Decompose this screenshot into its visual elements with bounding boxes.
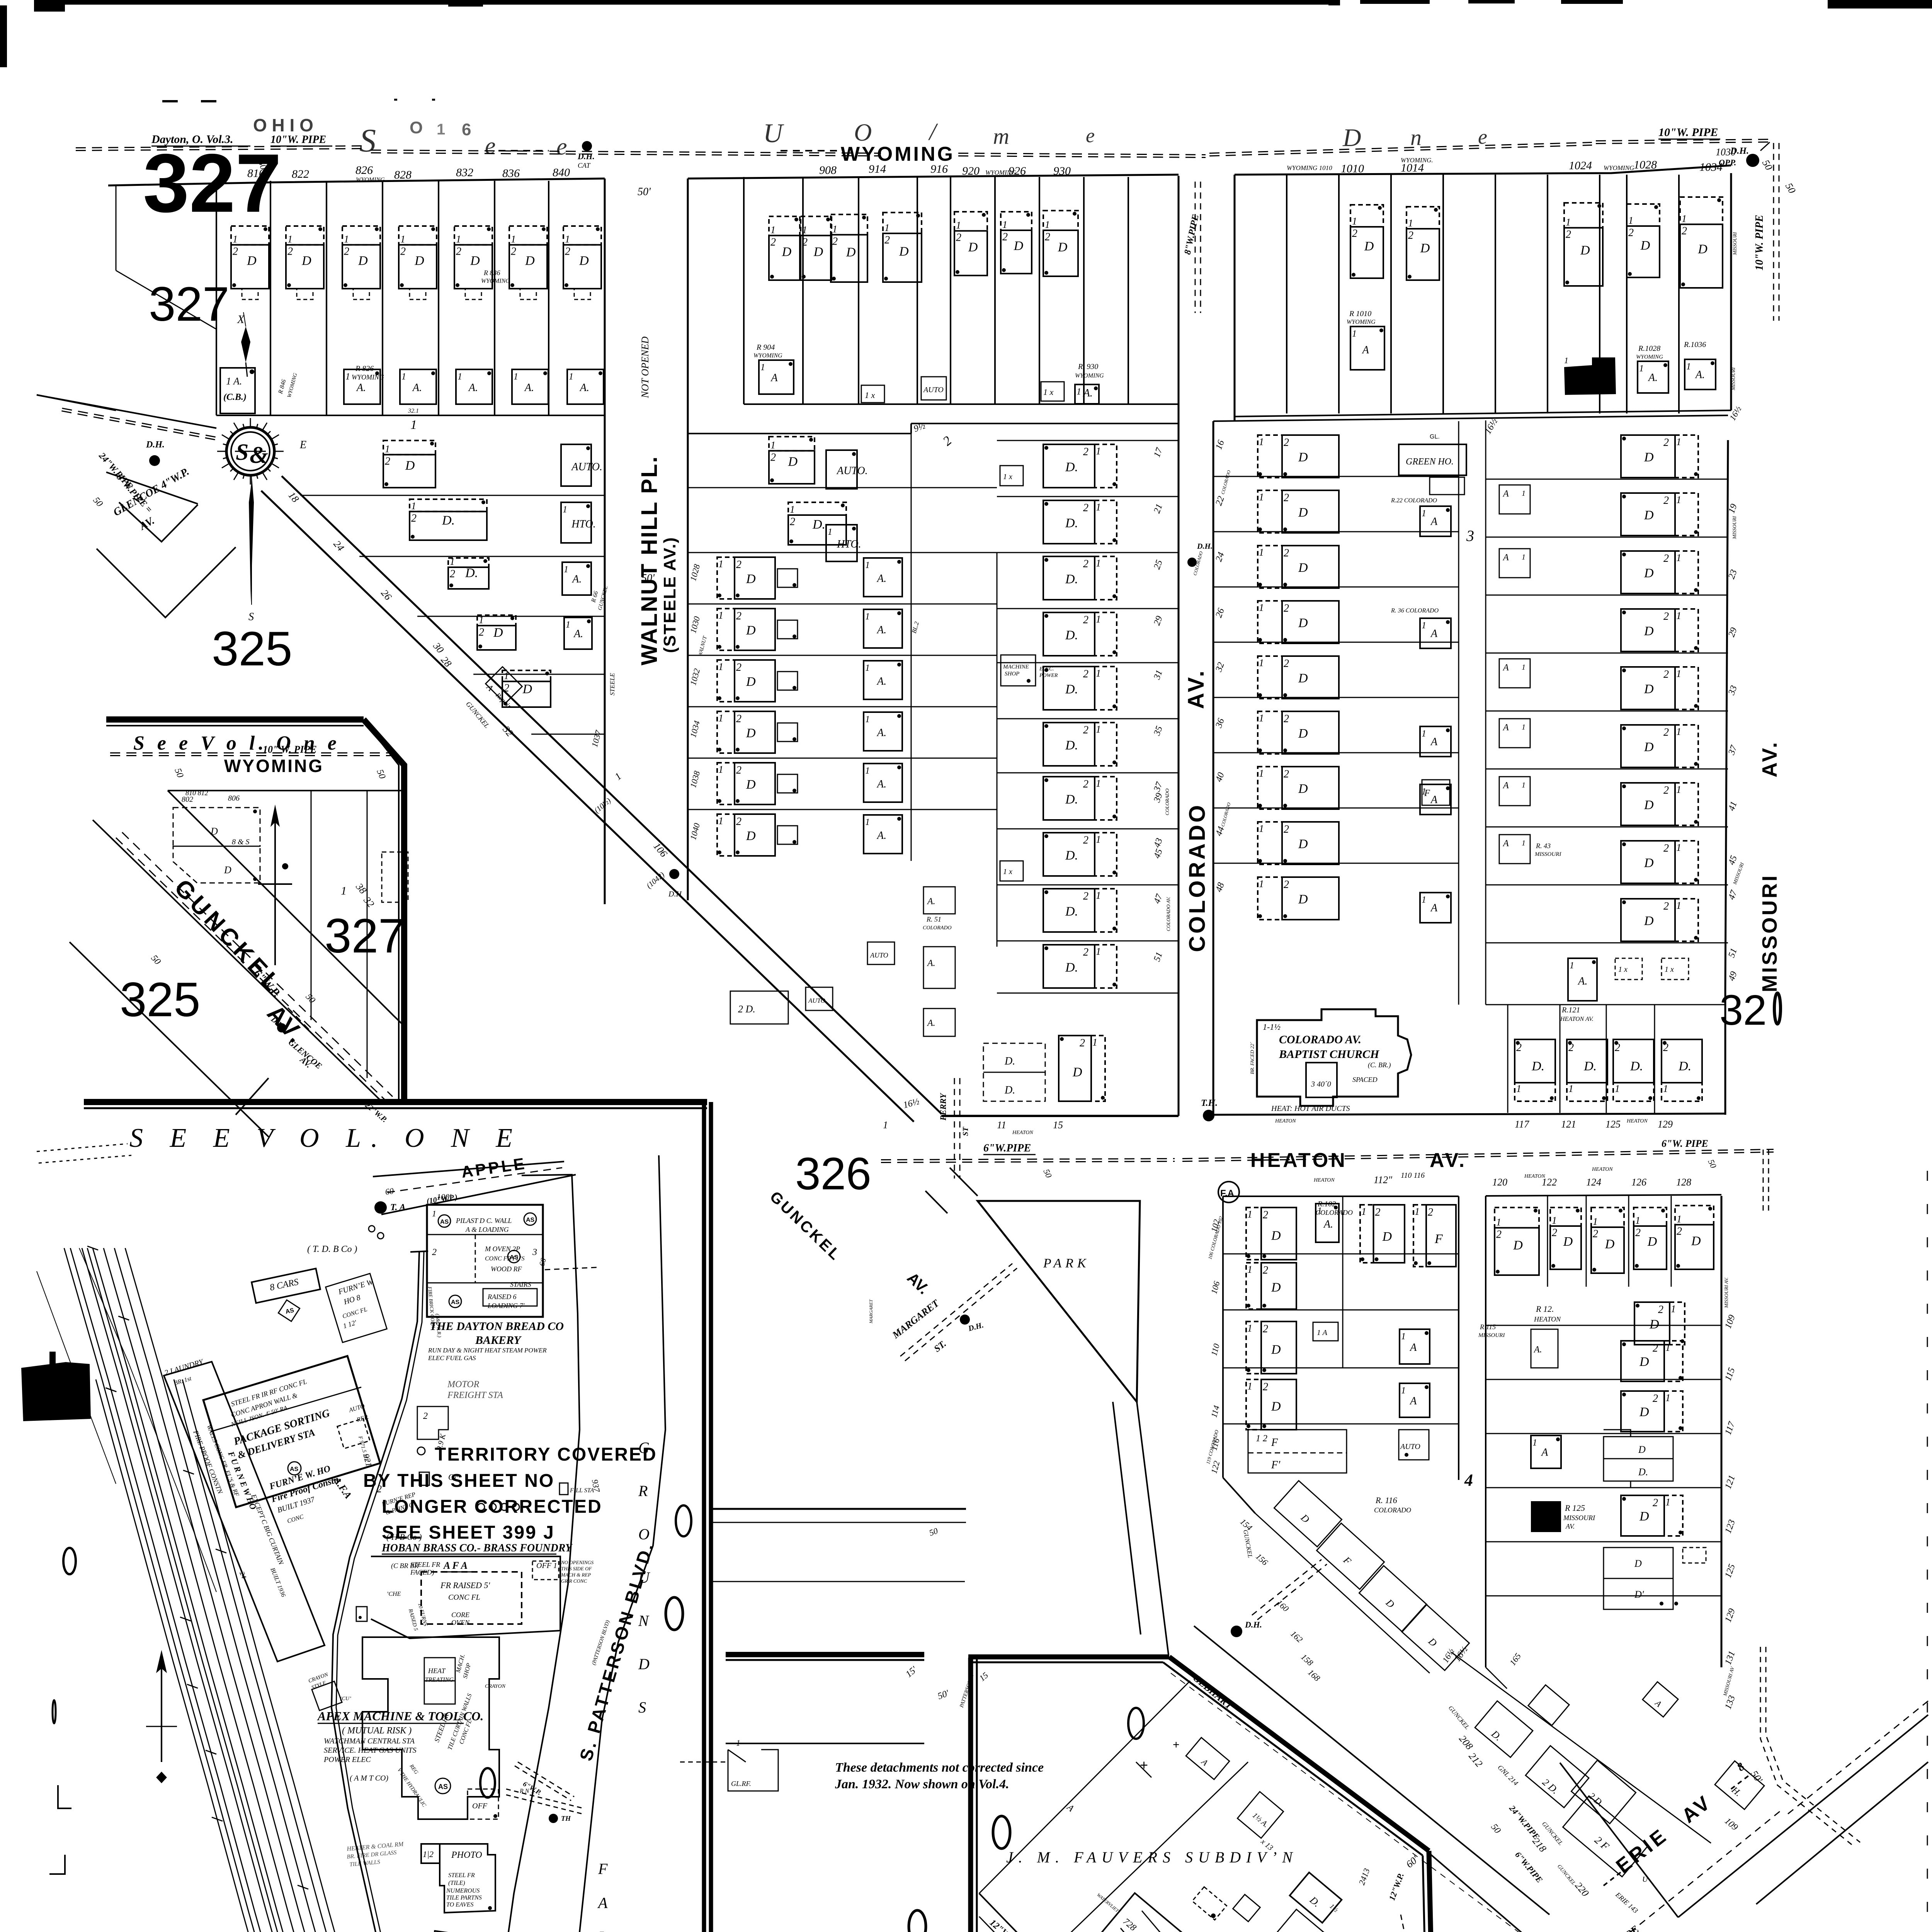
svg-text:D: D xyxy=(1639,1405,1649,1419)
svg-text:E: E xyxy=(299,439,306,451)
svg-text:1 x: 1 x xyxy=(1665,965,1674,974)
svg-text:AUTO: AUTO xyxy=(923,386,944,394)
svg-text:1: 1 xyxy=(1522,723,1526,731)
svg-text:D.: D. xyxy=(1678,1059,1691,1073)
svg-text:1: 1 xyxy=(1096,502,1101,513)
svg-text:D: D xyxy=(358,253,368,268)
svg-text:1: 1 xyxy=(1422,895,1426,905)
svg-text:1: 1 xyxy=(1628,215,1633,226)
svg-text:D: D xyxy=(1298,505,1308,520)
svg-text:1: 1 xyxy=(1352,216,1357,227)
svg-text:D: D xyxy=(1649,1317,1659,1332)
svg-text:810 812: 810 812 xyxy=(185,789,208,797)
svg-text:A.: A. xyxy=(927,896,935,906)
svg-text:914: 914 xyxy=(869,163,886,175)
svg-text:D: D xyxy=(224,864,231,876)
svg-text:U: U xyxy=(638,1569,651,1586)
svg-text:R.121: R.121 xyxy=(1561,1006,1580,1014)
svg-text:U: U xyxy=(763,119,784,148)
svg-text:10"W. PIPE: 10"W. PIPE xyxy=(1753,215,1765,270)
svg-text:D: D xyxy=(899,245,909,259)
svg-text:1: 1 xyxy=(1317,1206,1322,1216)
svg-text:2: 2 xyxy=(1677,1226,1682,1238)
svg-text:1: 1 xyxy=(865,560,870,570)
svg-text:SHOP: SHOP xyxy=(1005,671,1019,677)
svg-text:1 2: 1 2 xyxy=(1256,1434,1267,1444)
svg-text:1: 1 xyxy=(832,224,837,235)
svg-text:MISSOURI: MISSOURI xyxy=(1732,232,1738,255)
svg-text:1: 1 xyxy=(1422,621,1426,631)
svg-text:1: 1 xyxy=(1676,784,1681,795)
svg-text:1: 1 xyxy=(1665,1342,1670,1353)
svg-text:2: 2 xyxy=(450,568,455,580)
svg-text:D: D xyxy=(1634,1558,1642,1569)
svg-text:HEAT: HOT AIR DUCTS: HEAT: HOT AIR DUCTS xyxy=(1271,1104,1350,1113)
svg-text:A.: A. xyxy=(1323,1218,1333,1230)
svg-text:1: 1 xyxy=(718,764,723,775)
svg-text:32.1: 32.1 xyxy=(408,408,419,414)
svg-text:ELEC.: ELEC. xyxy=(1039,666,1054,672)
svg-text:2: 2 xyxy=(1663,611,1669,622)
svg-text:2: 2 xyxy=(884,234,890,246)
svg-text:2: 2 xyxy=(504,682,509,694)
svg-text:NOT OPENED: NOT OPENED xyxy=(639,337,651,398)
svg-text:A.: A. xyxy=(876,675,886,687)
svg-text:110 116: 110 116 xyxy=(1401,1171,1425,1180)
svg-text:129: 129 xyxy=(1658,1119,1673,1130)
svg-text:D: D xyxy=(525,253,535,268)
svg-text:A.: A. xyxy=(876,830,886,842)
svg-text:m: m xyxy=(993,124,1009,149)
svg-text:1: 1 xyxy=(802,224,807,236)
svg-text:D.: D. xyxy=(1004,1055,1015,1067)
svg-text:2: 2 xyxy=(1663,553,1669,565)
svg-text:SPACED: SPACED xyxy=(1352,1076,1378,1083)
svg-text:R.1028: R.1028 xyxy=(1638,344,1660,353)
svg-text:2: 2 xyxy=(1663,495,1669,507)
svg-text:15: 15 xyxy=(1053,1119,1063,1131)
svg-text:BAKERY: BAKERY xyxy=(475,1334,522,1347)
svg-text:FR RAISED 5′: FR RAISED 5′ xyxy=(440,1580,490,1590)
svg-text:112": 112" xyxy=(1374,1174,1392,1185)
svg-text:1: 1 xyxy=(1259,878,1264,889)
svg-text:HEATON AV.: HEATON AV. xyxy=(1560,1016,1594,1022)
svg-text:1: 1 xyxy=(1259,823,1264,834)
svg-text:1: 1 xyxy=(1408,218,1413,229)
svg-text:MISSOURI: MISSOURI xyxy=(1730,367,1736,391)
svg-text:COLORADO AV.: COLORADO AV. xyxy=(1165,896,1171,931)
svg-text:D.: D. xyxy=(1065,904,1078,918)
svg-text:A: A xyxy=(597,1894,608,1912)
svg-text:Oc: Oc xyxy=(448,1472,458,1482)
svg-text:R. 51: R. 51 xyxy=(926,915,941,923)
svg-text:HEATON: HEATON xyxy=(1626,1118,1648,1124)
svg-text:1: 1 xyxy=(865,663,870,673)
svg-text:ELEC FUEL GAS: ELEC FUEL GAS xyxy=(428,1354,476,1362)
svg-text:D: D xyxy=(247,253,257,268)
svg-text:A: A xyxy=(1502,838,1509,849)
svg-text:A.: A. xyxy=(1083,387,1093,399)
svg-text:1: 1 xyxy=(1676,726,1681,737)
svg-text:O: O xyxy=(638,1526,650,1543)
svg-text:1: 1 xyxy=(479,614,484,626)
svg-text:1: 1 xyxy=(1096,558,1101,569)
svg-text:+: + xyxy=(1173,1738,1180,1751)
svg-text:HOBAN BRASS CO.- BRASS FOUND: HOBAN BRASS CO.- BRASS FOUNDRY xyxy=(381,1542,573,1554)
svg-text:D: D xyxy=(1640,238,1650,253)
svg-text:(STEELE AV.): (STEELE AV.) xyxy=(660,537,679,653)
svg-text:822: 822 xyxy=(292,168,309,180)
svg-text:STEEL FR: STEEL FR xyxy=(448,1872,475,1879)
svg-text:3 40´0: 3 40´0 xyxy=(1311,1080,1331,1088)
svg-text:&: & xyxy=(250,442,268,468)
svg-text:A: A xyxy=(770,372,778,384)
svg-text:1: 1 xyxy=(564,565,568,575)
svg-text:1: 1 xyxy=(884,222,889,233)
svg-text:POWER: POWER xyxy=(1039,673,1058,679)
svg-text:128: 128 xyxy=(1676,1177,1691,1188)
svg-text:2: 2 xyxy=(1635,1227,1641,1239)
svg-text:A: A xyxy=(1502,723,1509,733)
svg-text:( A M T CO): ( A M T CO) xyxy=(350,1774,388,1782)
svg-text:1: 1 xyxy=(1522,839,1526,847)
svg-text:AS: AS xyxy=(510,1254,519,1261)
svg-text:A: A xyxy=(1430,628,1438,639)
svg-text:1: 1 xyxy=(1676,610,1681,621)
svg-text:A.: A. xyxy=(876,624,886,636)
svg-text:11: 11 xyxy=(997,1119,1006,1131)
svg-text:D: D xyxy=(1644,508,1654,522)
svg-text:( T. D. B Co ): ( T. D. B Co ) xyxy=(307,1244,357,1254)
svg-text:A: A xyxy=(1541,1447,1548,1459)
svg-text:1: 1 xyxy=(1552,1215,1557,1226)
svg-text:D: D xyxy=(1644,450,1654,464)
svg-text:2: 2 xyxy=(1566,229,1571,241)
svg-text:HEATON: HEATON xyxy=(1524,1173,1545,1179)
svg-text:AV.: AV. xyxy=(1565,1522,1575,1530)
svg-text:A.: A. xyxy=(412,382,422,394)
svg-text:D: D xyxy=(746,829,756,843)
svg-text:2: 2 xyxy=(802,236,808,248)
svg-text:1: 1 xyxy=(770,440,776,451)
svg-text:’CHE: ’CHE xyxy=(386,1591,401,1597)
svg-text:HTO.: HTO. xyxy=(837,538,861,550)
svg-text:1: 1 xyxy=(1532,1438,1537,1448)
svg-text:1: 1 xyxy=(736,1738,740,1748)
svg-text:D: D xyxy=(522,682,532,696)
svg-text:1: 1 xyxy=(1635,1215,1640,1226)
svg-text:J. M. FAUVERS SUBDIV’N: J. M. FAUVERS SUBDIV’N xyxy=(1006,1849,1298,1866)
svg-text:2: 2 xyxy=(1045,231,1050,243)
svg-text:GL.RF.: GL.RF. xyxy=(731,1780,751,1787)
svg-text:THE DAYTON BREAD CO: THE DAYTON BREAD CO xyxy=(430,1320,564,1333)
svg-text:D: D xyxy=(1298,561,1308,575)
svg-text:POWER ELEC: POWER ELEC xyxy=(323,1755,371,1764)
svg-text:327: 327 xyxy=(325,909,405,963)
svg-text:D: D xyxy=(782,245,792,259)
svg-text:1: 1 xyxy=(401,372,406,382)
svg-text:2: 2 xyxy=(832,236,838,248)
svg-text:60: 60 xyxy=(384,1186,394,1197)
svg-text:1 A: 1 A xyxy=(1317,1328,1328,1337)
svg-text:G: G xyxy=(638,1439,650,1456)
svg-text:F: F xyxy=(1271,1437,1278,1449)
svg-text:RAISED 6: RAISED 6 xyxy=(487,1293,516,1301)
svg-text:2: 2 xyxy=(385,456,390,468)
svg-text:2: 2 xyxy=(1284,713,1289,725)
svg-text:1: 1 xyxy=(1570,961,1574,971)
svg-text:1: 1 xyxy=(563,505,567,515)
svg-text:WYOMING: WYOMING xyxy=(1075,372,1104,379)
svg-text:R 115: R 115 xyxy=(1480,1323,1496,1331)
svg-text:1: 1 xyxy=(450,556,455,567)
svg-text:2: 2 xyxy=(287,246,293,258)
svg-text:1: 1 xyxy=(1639,364,1644,374)
svg-text:10" W. PIPE: 10" W. PIPE xyxy=(263,744,317,755)
svg-text:1010: 1010 xyxy=(1341,162,1364,175)
svg-text:2: 2 xyxy=(1653,1342,1658,1354)
svg-text:NUMEROUS: NUMEROUS xyxy=(446,1888,480,1894)
svg-text:FACED): FACED) xyxy=(410,1568,434,1577)
svg-text:COLORADO: COLORADO xyxy=(1374,1506,1411,1514)
svg-text:125: 125 xyxy=(1605,1119,1621,1130)
svg-text:F: F xyxy=(1424,788,1430,798)
svg-text:1: 1 xyxy=(1677,1214,1682,1225)
svg-text:1: 1 xyxy=(1676,494,1681,505)
svg-text:325: 325 xyxy=(212,622,293,676)
svg-text:D.H.: D.H. xyxy=(1730,146,1749,156)
svg-text:AS: AS xyxy=(438,1783,448,1791)
svg-text:D: D xyxy=(746,726,756,740)
svg-text:2: 2 xyxy=(1083,502,1088,514)
svg-text:2: 2 xyxy=(1284,437,1289,449)
svg-text:R.1036: R.1036 xyxy=(1684,340,1706,349)
svg-text:A: A xyxy=(1430,515,1438,527)
svg-text:WYOMING: WYOMING xyxy=(753,352,782,359)
svg-text:D: D xyxy=(1298,726,1308,741)
svg-text:50': 50' xyxy=(638,186,651,198)
svg-text:1: 1 xyxy=(457,372,462,382)
svg-text:HEAT: HEAT xyxy=(428,1667,446,1675)
svg-text:A.: A. xyxy=(1533,1345,1542,1355)
svg-text:1: 1 xyxy=(1568,1083,1573,1094)
svg-text:( H B Co ): ( H B Co ) xyxy=(386,1532,422,1542)
svg-text:2: 2 xyxy=(1408,230,1413,241)
svg-text:D: D xyxy=(1639,1355,1649,1369)
svg-text:RUN DAY & NIGHT HEAT STEAM PO: RUN DAY & NIGHT HEAT STEAM POWER xyxy=(428,1347,547,1354)
svg-text:TH: TH xyxy=(561,1815,571,1822)
svg-text:R: R xyxy=(638,1482,648,1500)
svg-text:D: D xyxy=(1647,1235,1657,1249)
svg-text:FILL STA: FILL STA xyxy=(570,1487,594,1494)
svg-text:MARGARET: MARGARET xyxy=(868,1299,874,1324)
svg-text:1 x: 1 x xyxy=(1618,965,1628,974)
svg-text:D: D xyxy=(746,572,756,586)
svg-text:2: 2 xyxy=(1653,1393,1658,1405)
svg-text:836: 836 xyxy=(502,167,520,180)
svg-text:A: A xyxy=(1409,1395,1417,1407)
svg-text:D.: D. xyxy=(1065,848,1078,862)
svg-text:1: 1 xyxy=(1686,362,1691,372)
svg-text:1: 1 xyxy=(1522,781,1526,789)
svg-text:1: 1 xyxy=(1516,1083,1521,1094)
svg-text:1: 1 xyxy=(1676,668,1681,679)
svg-text:CORE: CORE xyxy=(451,1611,469,1619)
svg-text:2: 2 xyxy=(1083,668,1088,680)
svg-text:A: A xyxy=(1430,794,1438,806)
svg-text:1: 1 xyxy=(1096,834,1101,845)
svg-text:(CU’: (CU’ xyxy=(340,1696,351,1702)
svg-text:2: 2 xyxy=(1428,1206,1433,1218)
svg-text:A.: A. xyxy=(927,958,935,968)
svg-text:D: D xyxy=(1298,671,1308,685)
svg-text:1: 1 xyxy=(1092,1037,1097,1048)
svg-text:F: F xyxy=(1434,1232,1443,1246)
svg-text:1: 1 xyxy=(718,558,723,570)
svg-text:2: 2 xyxy=(790,516,795,528)
svg-text:1: 1 xyxy=(1002,219,1007,230)
svg-text:WYOMING.: WYOMING. xyxy=(1401,156,1433,164)
svg-text:1: 1 xyxy=(760,362,765,372)
svg-text:D.: D. xyxy=(1583,1059,1597,1073)
svg-text:1: 1 xyxy=(865,612,870,622)
svg-text:A.: A. xyxy=(1648,372,1658,384)
svg-text:COLORADO: COLORADO xyxy=(1164,788,1170,815)
svg-text:MISSOURI: MISSOURI xyxy=(1534,851,1561,857)
svg-text:1: 1 xyxy=(569,372,573,382)
svg-text:1-1½: 1-1½ xyxy=(1263,1022,1281,1032)
svg-text:A & LOADING: A & LOADING xyxy=(465,1226,509,1233)
svg-text:D.: D. xyxy=(1004,1084,1015,1096)
svg-text:1: 1 xyxy=(1096,668,1101,679)
svg-text:1: 1 xyxy=(1096,946,1101,957)
svg-text:D′: D′ xyxy=(1634,1589,1644,1600)
svg-text:1: 1 xyxy=(1096,446,1101,457)
svg-text:2: 2 xyxy=(1663,784,1669,796)
svg-text:D: D xyxy=(846,245,856,260)
svg-text:2: 2 xyxy=(1083,558,1088,570)
svg-text:2: 2 xyxy=(1284,879,1289,891)
svg-text:D.: D. xyxy=(1065,516,1078,530)
svg-text:1: 1 xyxy=(1352,329,1357,339)
svg-text:AS: AS xyxy=(451,1299,460,1306)
svg-text:A.: A. xyxy=(1577,975,1587,987)
svg-text:2: 2 xyxy=(1263,1381,1268,1393)
svg-text:1: 1 xyxy=(566,620,570,630)
svg-text:OVEN: OVEN xyxy=(451,1619,470,1626)
svg-text:2: 2 xyxy=(1284,658,1289,670)
svg-text:1: 1 xyxy=(1247,1323,1252,1334)
svg-text:1: 1 xyxy=(770,224,776,236)
svg-text:+: + xyxy=(1140,1757,1148,1773)
svg-text:R. 930: R. 930 xyxy=(1078,362,1098,371)
svg-text:D.H.: D.H. xyxy=(577,151,595,161)
svg-text:(TILE): (TILE) xyxy=(448,1880,465,1886)
svg-text:S: S xyxy=(236,439,248,465)
svg-text:1: 1 xyxy=(565,234,570,245)
svg-text:A: A xyxy=(1362,344,1369,356)
svg-text:HEATON: HEATON xyxy=(1313,1177,1335,1183)
svg-text:2: 2 xyxy=(1284,602,1289,614)
svg-text:1: 1 xyxy=(344,234,349,245)
svg-text:D: D xyxy=(1298,450,1308,464)
svg-text:AS: AS xyxy=(440,1219,449,1225)
svg-text:D: D xyxy=(1605,1237,1615,1251)
svg-text:2: 2 xyxy=(1552,1227,1557,1239)
svg-text:50': 50' xyxy=(641,572,655,584)
svg-text:O: O xyxy=(410,118,423,137)
svg-text:AV.: AV. xyxy=(1184,668,1209,709)
svg-text:STAIRS: STAIRS xyxy=(510,1281,531,1288)
svg-text:D: D xyxy=(746,675,756,689)
svg-text:2: 2 xyxy=(456,246,461,258)
svg-text:D.: D. xyxy=(1065,628,1078,642)
svg-text:2: 2 xyxy=(1080,1037,1085,1049)
svg-text:D.: D. xyxy=(1065,682,1078,696)
svg-text:TILE PARTNS: TILE PARTNS xyxy=(446,1895,482,1901)
svg-text:R 904: R 904 xyxy=(756,343,775,352)
svg-text:1: 1 xyxy=(1522,489,1526,498)
svg-text:2: 2 xyxy=(736,662,742,673)
svg-text:CRAYON: CRAYON xyxy=(485,1684,506,1689)
svg-text:2: 2 xyxy=(1658,1304,1663,1316)
svg-text:D: D xyxy=(813,245,823,259)
svg-text:A: A xyxy=(1502,553,1509,563)
svg-text:2: 2 xyxy=(344,246,349,258)
svg-text:A: A xyxy=(1430,736,1438,748)
svg-text:1: 1 xyxy=(828,527,832,537)
svg-text:6"W. PIPE: 6"W. PIPE xyxy=(1662,1138,1708,1149)
svg-text:S: S xyxy=(638,1699,646,1716)
svg-text:WYOMING: WYOMING xyxy=(1347,319,1376,325)
svg-text:AS: AS xyxy=(290,1466,299,1473)
svg-text:1: 1 xyxy=(1522,663,1526,672)
svg-text:D: D xyxy=(1638,1444,1646,1455)
svg-text:D.: D. xyxy=(1065,460,1078,474)
svg-text:M OVEN 2P: M OVEN 2P xyxy=(485,1245,520,1253)
svg-text:2: 2 xyxy=(1083,446,1088,458)
svg-text:1: 1 xyxy=(790,504,795,515)
svg-text:2: 2 xyxy=(1653,1497,1658,1509)
svg-text:1: 1 xyxy=(432,1209,436,1218)
svg-text:1: 1 xyxy=(341,884,347,897)
svg-text:1: 1 xyxy=(1676,552,1681,563)
svg-text:326: 326 xyxy=(795,1148,871,1199)
svg-text:S E E V O L. O N E: S E E V O L. O N E xyxy=(129,1123,522,1153)
svg-text:D.H.: D.H. xyxy=(146,440,165,450)
svg-text:AV.: AV. xyxy=(1758,740,1781,777)
svg-text:R 836: R 836 xyxy=(483,269,500,277)
svg-text:2: 2 xyxy=(423,1411,428,1421)
svg-text:D: D xyxy=(746,777,756,792)
svg-text:2: 2 xyxy=(1375,1206,1381,1218)
svg-text:D: D xyxy=(1342,124,1361,152)
svg-text:2: 2 xyxy=(1083,614,1088,626)
svg-text:1: 1 xyxy=(437,121,445,138)
svg-text:1: 1 xyxy=(400,234,405,245)
svg-text:2: 2 xyxy=(479,626,484,638)
svg-text:WYOMING: WYOMING xyxy=(1604,164,1634,172)
svg-text:2: 2 xyxy=(1284,547,1289,559)
svg-text:A.: A. xyxy=(524,382,534,394)
svg-text:NO OPENINGS: NO OPENINGS xyxy=(561,1560,594,1565)
svg-text:A.: A. xyxy=(468,382,478,394)
svg-text:R 1010: R 1010 xyxy=(1349,310,1371,318)
svg-text:A.: A. xyxy=(876,573,886,585)
svg-text:1: 1 xyxy=(1401,1332,1406,1342)
svg-text:HEATON: HEATON xyxy=(1012,1130,1033,1136)
svg-text:1: 1 xyxy=(956,220,961,231)
